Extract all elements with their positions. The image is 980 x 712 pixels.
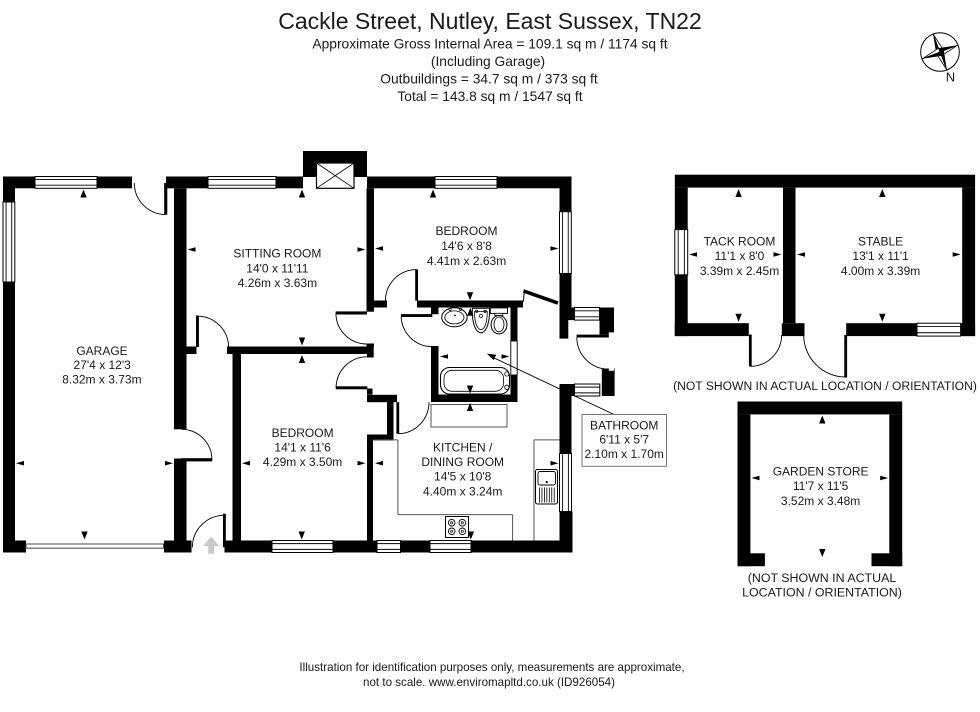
svg-text:not to scale. www.enviromapltd: not to scale. www.enviromapltd.co.uk (ID… [363,676,615,689]
svg-text:KITCHEN /: KITCHEN / [433,441,493,455]
svg-text:4.26m x 3.63m: 4.26m x 3.63m [238,276,317,290]
svg-text:Total = 143.8 sq m / 1547 sq f: Total = 143.8 sq m / 1547 sq ft [397,89,582,104]
svg-text:BEDROOM: BEDROOM [435,224,497,238]
svg-text:Approximate Gross Internal Are: Approximate Gross Internal Area = 109.1 … [312,37,667,52]
svg-text:(NOT SHOWN IN ACTUAL: (NOT SHOWN IN ACTUAL [748,571,897,585]
svg-text:BEDROOM: BEDROOM [272,426,334,440]
svg-text:STABLE: STABLE [858,235,903,249]
svg-text:N: N [946,70,955,85]
svg-text:4.41m x 2.63m: 4.41m x 2.63m [427,254,506,268]
svg-text:Outbuildings = 34.7 sq m / 373: Outbuildings = 34.7 sq m / 373 sq ft [380,72,598,87]
svg-text:11'1 x 8'0: 11'1 x 8'0 [715,249,765,263]
svg-text:14'1 x 11'6: 14'1 x 11'6 [274,441,331,455]
svg-text:27'4 x 12'3: 27'4 x 12'3 [74,358,132,372]
svg-text:11'7 x 11'5: 11'7 x 11'5 [793,479,849,493]
svg-text:2.10m x 1.70m: 2.10m x 1.70m [585,447,664,461]
svg-text:DINING ROOM: DINING ROOM [421,455,504,469]
svg-text:14'6 x 8'8: 14'6 x 8'8 [441,239,492,253]
svg-text:3.39m x 2.45m: 3.39m x 2.45m [700,264,779,278]
svg-text:4.00m x 3.39m: 4.00m x 3.39m [841,264,920,278]
svg-text:GARAGE: GARAGE [76,344,127,358]
svg-text:BATHROOM: BATHROOM [590,418,658,432]
svg-text:(Including Garage): (Including Garage) [431,54,545,69]
svg-text:Cackle Street, Nutley, East Su: Cackle Street, Nutley, East Sussex, TN22 [278,8,702,34]
svg-text:4.29m x 3.50m: 4.29m x 3.50m [263,455,342,469]
svg-text:14'0 x 11'11: 14'0 x 11'11 [246,261,309,275]
svg-text:(NOT SHOWN IN ACTUAL LOCATION: (NOT SHOWN IN ACTUAL LOCATION / ORIENTAT… [673,379,977,393]
svg-text:LOCATION / ORIENTATION): LOCATION / ORIENTATION) [742,585,902,599]
svg-text:3.52m x 3.48m: 3.52m x 3.48m [781,494,860,508]
svg-text:13'1 x 11'1: 13'1 x 11'1 [852,249,909,263]
svg-text:TACK ROOM: TACK ROOM [704,235,776,249]
svg-text:14'5 x 10'8: 14'5 x 10'8 [434,470,492,484]
svg-text:4.40m x 3.24m: 4.40m x 3.24m [423,484,502,498]
svg-text:GARDEN STORE: GARDEN STORE [773,465,869,479]
svg-text:SITTING ROOM: SITTING ROOM [233,246,321,260]
svg-text:8.32m x 3.73m: 8.32m x 3.73m [62,373,141,387]
svg-text:Illustration for identificatio: Illustration for identification purposes… [299,661,684,674]
svg-text:6'11 x 5'7: 6'11 x 5'7 [599,433,649,447]
